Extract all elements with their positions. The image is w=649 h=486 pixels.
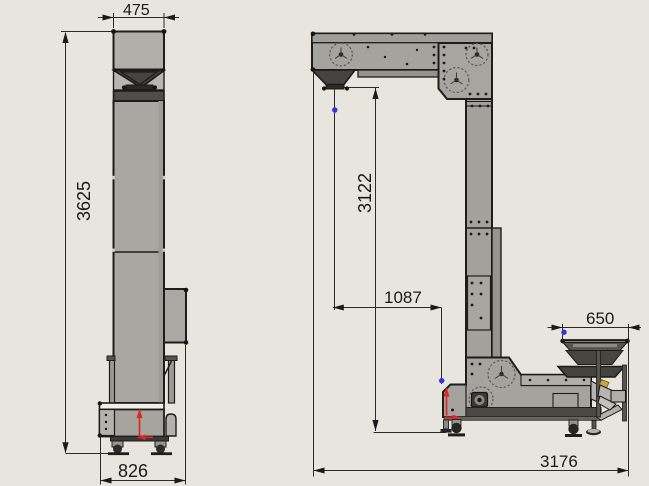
svg-text:826: 826 <box>118 461 148 481</box>
svg-text:475: 475 <box>123 2 150 19</box>
svg-text:3122: 3122 <box>355 173 375 213</box>
svg-text:650: 650 <box>586 309 614 328</box>
svg-text:1087: 1087 <box>384 288 422 307</box>
svg-text:3176: 3176 <box>540 452 578 471</box>
svg-text:3625: 3625 <box>74 181 94 221</box>
